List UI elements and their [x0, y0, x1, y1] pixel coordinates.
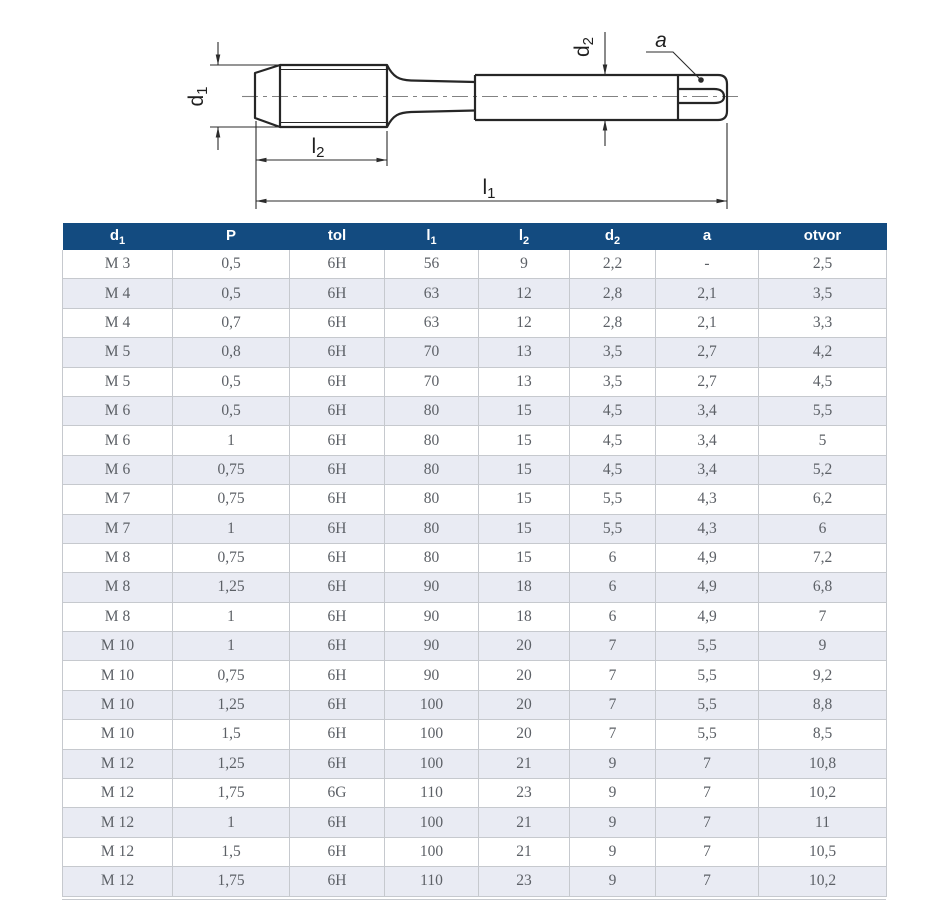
table-cell: 23 [479, 867, 570, 896]
table-cell: 7 [570, 690, 656, 719]
table-cell: 1,75 [173, 779, 290, 808]
table-cell: 1,75 [173, 867, 290, 896]
table-row: M 816H901864,97 [63, 602, 887, 631]
table-cell: 80 [385, 396, 479, 425]
table-cell: M 7 [63, 485, 173, 514]
table-cell: 90 [385, 661, 479, 690]
table-cell: 6H [290, 250, 385, 279]
table-cell: 9,2 [759, 661, 887, 690]
table-cell: 4,5 [570, 396, 656, 425]
column-header-d1: d1 [63, 223, 173, 250]
dim-label-a: a [655, 29, 667, 52]
table-cell: 5,5 [656, 632, 759, 661]
table-cell: 0,75 [173, 661, 290, 690]
table-cell: 6H [290, 455, 385, 484]
table-cell: 21 [479, 837, 570, 866]
table-cell: 6H [290, 279, 385, 308]
table-cell: M 12 [63, 837, 173, 866]
table-cell: 6H [290, 867, 385, 896]
table-row: M 1216H100219711 [63, 808, 887, 837]
table-cell: 0,5 [173, 396, 290, 425]
table-cell: M 12 [63, 867, 173, 896]
table-cell: 110 [385, 779, 479, 808]
table-cell: 1 [173, 426, 290, 455]
table-cell: 6H [290, 573, 385, 602]
table-row: M 81,256H901864,96,8 [63, 573, 887, 602]
table-row: M 50,56H70133,52,74,5 [63, 367, 887, 396]
table-cell: M 8 [63, 602, 173, 631]
table-cell: 4,2 [759, 338, 887, 367]
table-cell: 5,5 [570, 514, 656, 543]
table-row: M 40,76H63122,82,13,3 [63, 308, 887, 337]
dim-label-l1: l1 [482, 176, 495, 202]
table-cell: 6 [570, 602, 656, 631]
table-row: M 121,56H100219710,5 [63, 837, 887, 866]
table-cell: 6H [290, 367, 385, 396]
table-cell: 9 [479, 250, 570, 279]
table-cell: M 6 [63, 426, 173, 455]
table-row: M 40,56H63122,82,13,5 [63, 279, 887, 308]
table-cell: 6H [290, 396, 385, 425]
table-row: M 100,756H902075,59,2 [63, 661, 887, 690]
table-cell: 80 [385, 514, 479, 543]
table-row: M 60,56H80154,53,45,5 [63, 396, 887, 425]
table-cell: 7 [570, 720, 656, 749]
page: d1 l2 l1 [0, 0, 943, 905]
table-cell: M 6 [63, 396, 173, 425]
table-cell: 1,25 [173, 749, 290, 778]
table-cell: 0,5 [173, 367, 290, 396]
table-cell: M 6 [63, 455, 173, 484]
table-cell: 0,75 [173, 485, 290, 514]
table-cell: M 10 [63, 661, 173, 690]
table-cell: M 8 [63, 543, 173, 572]
table-cell: M 4 [63, 308, 173, 337]
spec-table-section: d1 P tol l1 l2 d2 a otvor M 30,56H5692,2… [62, 223, 886, 900]
table-cell: 10,2 [759, 779, 887, 808]
table-row: M 70,756H80155,54,36,2 [63, 485, 887, 514]
table-cell: 6H [290, 837, 385, 866]
table-cell: 8,5 [759, 720, 887, 749]
table-cell: 13 [479, 338, 570, 367]
table-row: M 121,756G110239710,2 [63, 779, 887, 808]
table-cell: 2,2 [570, 250, 656, 279]
spec-table-header: d1 P tol l1 l2 d2 a otvor [63, 223, 887, 250]
table-cell: 6,2 [759, 485, 887, 514]
table-cell: M 10 [63, 690, 173, 719]
table-cell: 15 [479, 485, 570, 514]
spec-table-body: M 30,56H5692,2-2,5M 40,56H63122,82,13,5M… [63, 250, 887, 896]
table-cell: 6,8 [759, 573, 887, 602]
table-cell: 6G [290, 779, 385, 808]
table-cell: 0,5 [173, 250, 290, 279]
table-row: M 101,256H1002075,58,8 [63, 690, 887, 719]
table-cell: M 10 [63, 632, 173, 661]
dim-label-d2: d2 [571, 37, 597, 57]
table-cell: 6 [570, 543, 656, 572]
table-row: M 716H80155,54,36 [63, 514, 887, 543]
table-cell: 15 [479, 455, 570, 484]
table-cell: 15 [479, 396, 570, 425]
table-cell: 6H [290, 514, 385, 543]
table-cell: 12 [479, 279, 570, 308]
table-cell: M 12 [63, 779, 173, 808]
table-cell: 6H [290, 338, 385, 367]
table-cell: 6 [759, 514, 887, 543]
column-header-p: P [173, 223, 290, 250]
table-cell: 100 [385, 749, 479, 778]
table-cell: 7 [570, 632, 656, 661]
table-cell: M 10 [63, 720, 173, 749]
column-header-a: a [656, 223, 759, 250]
table-cell: 21 [479, 808, 570, 837]
table-cell: 3,5 [570, 338, 656, 367]
table-cell: 1 [173, 808, 290, 837]
table-cell: 3,4 [656, 455, 759, 484]
table-cell: 100 [385, 720, 479, 749]
table-cell: 3,4 [656, 396, 759, 425]
table-cell: 0,75 [173, 543, 290, 572]
table-cell: 5,5 [759, 396, 887, 425]
table-cell: 9 [570, 749, 656, 778]
table-cell: 13 [479, 367, 570, 396]
table-cell: 3,3 [759, 308, 887, 337]
table-cell: 6H [290, 543, 385, 572]
table-cell: 6H [290, 720, 385, 749]
column-header-tol: tol [290, 223, 385, 250]
table-cell: 2,5 [759, 250, 887, 279]
table-cell: 1,25 [173, 690, 290, 719]
table-cell: 90 [385, 602, 479, 631]
table-cell: 6H [290, 485, 385, 514]
table-cell: 70 [385, 338, 479, 367]
next-row-cutoff-line [62, 899, 886, 900]
table-cell: 4,9 [656, 602, 759, 631]
table-cell: 12 [479, 308, 570, 337]
table-row: M 121,256H100219710,8 [63, 749, 887, 778]
dimension-d2: d2 [571, 32, 607, 146]
table-cell: 80 [385, 455, 479, 484]
column-header-l2: l2 [479, 223, 570, 250]
table-cell: 1,5 [173, 720, 290, 749]
table-cell: 7 [656, 837, 759, 866]
table-cell: 80 [385, 485, 479, 514]
table-cell: 20 [479, 690, 570, 719]
table-cell: 6H [290, 808, 385, 837]
table-cell: 6H [290, 632, 385, 661]
table-cell: 2,8 [570, 308, 656, 337]
table-cell: 2,8 [570, 279, 656, 308]
dim-label-l2: l2 [311, 135, 324, 161]
table-cell: 80 [385, 543, 479, 572]
table-cell: 0,7 [173, 308, 290, 337]
table-cell: 3,5 [759, 279, 887, 308]
table-cell: M 4 [63, 279, 173, 308]
table-cell: 0,5 [173, 279, 290, 308]
table-cell: 0,8 [173, 338, 290, 367]
table-cell: 4,9 [656, 543, 759, 572]
tap-drawing-svg: d1 l2 l1 [0, 0, 943, 222]
table-cell: 8,8 [759, 690, 887, 719]
table-cell: M 8 [63, 573, 173, 602]
tap-technical-drawing: d1 l2 l1 [0, 0, 943, 222]
table-cell: 7 [570, 661, 656, 690]
table-cell: 10,5 [759, 837, 887, 866]
table-cell: 10,8 [759, 749, 887, 778]
table-cell: 0,75 [173, 455, 290, 484]
table-cell: 70 [385, 367, 479, 396]
table-cell: 7 [656, 808, 759, 837]
table-row: M 30,56H5692,2-2,5 [63, 250, 887, 279]
table-cell: 4,5 [570, 455, 656, 484]
table-cell: 9 [570, 867, 656, 896]
table-cell: 5,2 [759, 455, 887, 484]
table-cell: 20 [479, 661, 570, 690]
table-cell: 10,2 [759, 867, 887, 896]
dimension-l2: l2 [256, 121, 387, 209]
table-cell: 7 [656, 749, 759, 778]
column-header-otvor: otvor [759, 223, 887, 250]
table-cell: 1 [173, 602, 290, 631]
table-cell: 6H [290, 661, 385, 690]
table-cell: 15 [479, 543, 570, 572]
table-cell: 80 [385, 426, 479, 455]
table-cell: 18 [479, 573, 570, 602]
table-cell: 90 [385, 632, 479, 661]
table-cell: 7 [656, 779, 759, 808]
table-cell: 2,7 [656, 338, 759, 367]
table-cell: 20 [479, 720, 570, 749]
dim-label-d1: d1 [185, 86, 211, 106]
table-cell: 9 [759, 632, 887, 661]
table-cell: 110 [385, 867, 479, 896]
table-cell: 6H [290, 426, 385, 455]
table-cell: 5,5 [656, 661, 759, 690]
table-cell: 9 [570, 808, 656, 837]
table-cell: 90 [385, 573, 479, 602]
table-cell: 5 [759, 426, 887, 455]
table-cell: 2,1 [656, 279, 759, 308]
table-cell: 63 [385, 279, 479, 308]
table-cell: 4,5 [570, 426, 656, 455]
table-cell: M 12 [63, 808, 173, 837]
table-row: M 80,756H801564,97,2 [63, 543, 887, 572]
spec-table: d1 P tol l1 l2 d2 a otvor M 30,56H5692,2… [62, 223, 887, 897]
table-cell: 56 [385, 250, 479, 279]
table-cell: 15 [479, 426, 570, 455]
table-cell: - [656, 250, 759, 279]
table-cell: M 12 [63, 749, 173, 778]
table-cell: 100 [385, 808, 479, 837]
table-cell: 6H [290, 308, 385, 337]
table-cell: M 5 [63, 367, 173, 396]
table-cell: 4,3 [656, 514, 759, 543]
table-cell: 11 [759, 808, 887, 837]
table-cell: 7,2 [759, 543, 887, 572]
table-cell: 6 [570, 573, 656, 602]
table-cell: 63 [385, 308, 479, 337]
table-cell: 7 [759, 602, 887, 631]
table-cell: 2,7 [656, 367, 759, 396]
table-cell: 6H [290, 690, 385, 719]
table-cell: M 3 [63, 250, 173, 279]
table-cell: 4,9 [656, 573, 759, 602]
table-cell: 21 [479, 749, 570, 778]
table-row: M 50,86H70133,52,74,2 [63, 338, 887, 367]
table-cell: 5,5 [656, 720, 759, 749]
table-cell: 9 [570, 779, 656, 808]
column-header-l1: l1 [385, 223, 479, 250]
table-row: M 121,756H110239710,2 [63, 867, 887, 896]
table-cell: 1 [173, 514, 290, 543]
table-cell: 5,5 [570, 485, 656, 514]
table-cell: 15 [479, 514, 570, 543]
table-cell: 6H [290, 602, 385, 631]
table-row: M 1016H902075,59 [63, 632, 887, 661]
leader-dot [698, 77, 704, 83]
table-cell: 1,25 [173, 573, 290, 602]
table-cell: 4,5 [759, 367, 887, 396]
table-cell: 4,3 [656, 485, 759, 514]
table-cell: 9 [570, 837, 656, 866]
dimension-l1: l1 [256, 123, 727, 209]
table-cell: M 5 [63, 338, 173, 367]
table-cell: 7 [656, 867, 759, 896]
table-cell: 100 [385, 837, 479, 866]
table-row: M 101,56H1002075,58,5 [63, 720, 887, 749]
table-row: M 616H80154,53,45 [63, 426, 887, 455]
header-row: d1 P tol l1 l2 d2 a otvor [63, 223, 887, 250]
table-cell: 1 [173, 632, 290, 661]
table-cell: 2,1 [656, 308, 759, 337]
table-cell: 1,5 [173, 837, 290, 866]
table-cell: 23 [479, 779, 570, 808]
table-cell: 5,5 [656, 690, 759, 719]
table-cell: M 7 [63, 514, 173, 543]
table-cell: 3,5 [570, 367, 656, 396]
table-row: M 60,756H80154,53,45,2 [63, 455, 887, 484]
table-cell: 20 [479, 632, 570, 661]
table-cell: 100 [385, 690, 479, 719]
table-cell: 3,4 [656, 426, 759, 455]
table-cell: 18 [479, 602, 570, 631]
column-header-d2: d2 [570, 223, 656, 250]
table-cell: 6H [290, 749, 385, 778]
